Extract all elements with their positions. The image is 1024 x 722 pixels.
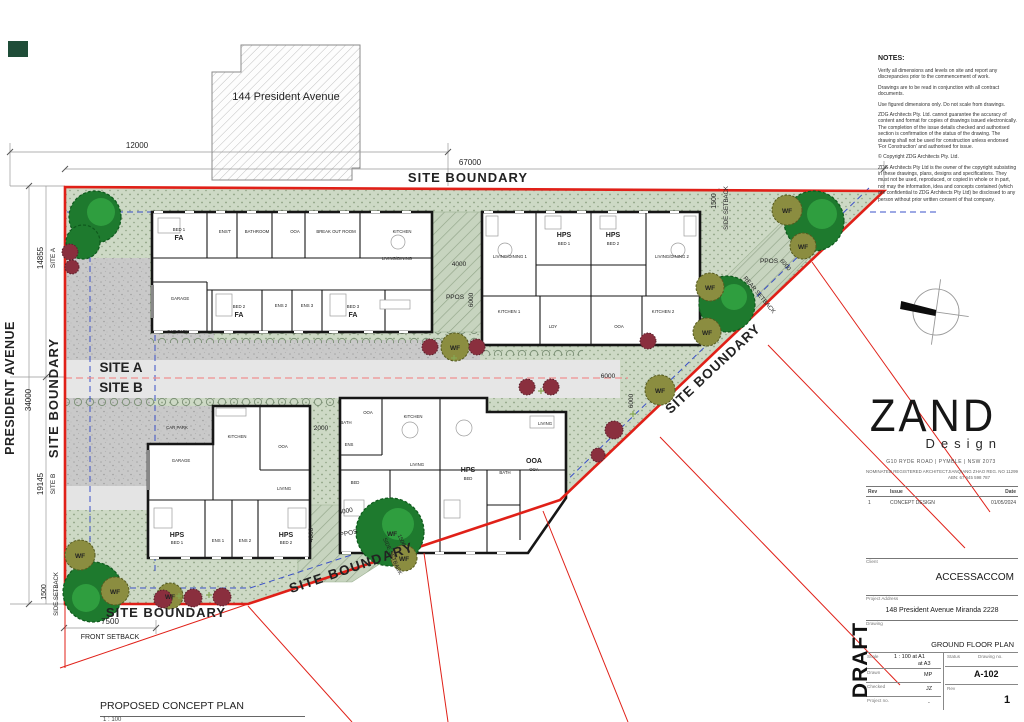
rev-value: 1 bbox=[866, 500, 890, 506]
room-label: LIVING/DINING 2 bbox=[655, 254, 690, 259]
unit-label-fa: FA bbox=[235, 312, 244, 319]
rev-label: Rev bbox=[947, 686, 955, 691]
site-boundary-left-label: SITE BOUNDARY bbox=[46, 338, 61, 458]
unit-label-hps: HPS bbox=[557, 232, 572, 239]
room-label: OOA bbox=[278, 444, 288, 449]
room-label: BED 2 bbox=[607, 241, 620, 246]
wf-label: WF bbox=[450, 345, 460, 352]
project-address-section: Project Address 148 President Avenue Mir… bbox=[866, 595, 1018, 614]
dim-14855: 14855 bbox=[36, 246, 45, 269]
wf-label: WF bbox=[387, 531, 397, 538]
room-label: GARAGE bbox=[172, 458, 191, 463]
client-section: Client ACCESSACCOM bbox=[866, 558, 1018, 583]
wf-label: WF bbox=[399, 556, 409, 563]
side-setback-left-label: SIDE SETBACK bbox=[54, 572, 60, 616]
site-a-label: SITE A bbox=[99, 360, 142, 375]
building-a2 bbox=[482, 212, 700, 345]
note-paragraph: Verify all dimensions and levels on site… bbox=[878, 68, 1018, 81]
note-paragraph: ZDG Architects Pty. Ltd. cannot guarante… bbox=[878, 112, 1018, 150]
site-b-label: SITE B bbox=[99, 380, 143, 395]
unit-label-hps: HPS bbox=[170, 532, 185, 539]
room-label: KITCHEN bbox=[404, 414, 423, 419]
ppos-mid-label: PPOS bbox=[446, 294, 465, 301]
dim-12000: 12000 bbox=[126, 141, 149, 150]
room-label: OOA bbox=[529, 467, 539, 472]
architect-row: NOMINATED REGISTERED ARCHITECT JIANQIANG… bbox=[866, 469, 1018, 481]
dim-6000-right-v: 6000 bbox=[628, 393, 635, 408]
room-label: BED 1 bbox=[171, 540, 184, 545]
drawing-title: GROUND FLOOR PLAN bbox=[866, 640, 1018, 649]
room-label: BED bbox=[351, 480, 360, 485]
room-label: LIVING bbox=[538, 421, 553, 426]
room-label: BED 3 bbox=[347, 304, 360, 309]
wf-label: WF bbox=[798, 244, 808, 251]
room-label: CAR PARK bbox=[167, 329, 189, 334]
room-label: ENS'T bbox=[219, 229, 232, 234]
rev-col-header: Rev bbox=[866, 489, 890, 495]
revision-table: Rev Issue Date 1 CONCEPT DESIGN 01/05/20… bbox=[866, 486, 1018, 509]
dim-6000-mid: 6000 bbox=[468, 292, 475, 307]
dim-1500-topright: 1500 bbox=[711, 193, 718, 209]
dim-1500-left: 1500 bbox=[41, 584, 48, 600]
title-block: NOTES: Verify all dimensions and levels … bbox=[858, 0, 1024, 722]
architect-label: NOMINATED REGISTERED ARCHITECT bbox=[866, 469, 948, 481]
room-label: OOA bbox=[290, 229, 300, 234]
issue-value: CONCEPT DESIGN bbox=[890, 500, 980, 506]
room-label: ENS bbox=[345, 442, 354, 447]
room-label: BATHROOM bbox=[245, 229, 270, 234]
rev-number: 1 bbox=[1004, 694, 1010, 706]
issue-col-header: Issue bbox=[890, 489, 980, 495]
room-label: LDY bbox=[549, 324, 557, 329]
room-label: ENS 2 bbox=[275, 303, 288, 308]
scale-value-a3: at A3 bbox=[918, 661, 931, 667]
room-label: LIVING bbox=[277, 486, 292, 491]
room-label: BED 2 bbox=[233, 304, 246, 309]
revision-row: 1 CONCEPT DESIGN 01/05/2024 bbox=[866, 497, 1018, 509]
wf-label: WF bbox=[782, 208, 792, 215]
room-label: GARAGE bbox=[171, 296, 190, 301]
room-label: BED bbox=[464, 476, 473, 481]
note-paragraph: ZDG Architects Pty Ltd is the owner of t… bbox=[878, 165, 1018, 203]
dim-34000: 34000 bbox=[24, 388, 33, 411]
room-label: LIVING/DINING bbox=[382, 256, 413, 261]
wf-label: WF bbox=[702, 330, 712, 337]
room-label: BREAK OUT ROOM bbox=[316, 229, 356, 234]
revision-table-header: Rev Issue Date bbox=[866, 486, 1018, 497]
wf-label: WF bbox=[110, 589, 120, 596]
drawing-label: Drawing bbox=[866, 621, 1018, 626]
neighbor-building bbox=[212, 45, 360, 180]
view-scale: 1 : 100 bbox=[103, 717, 121, 722]
room-label: LIVING bbox=[410, 462, 425, 467]
project-address-label: Project Address bbox=[866, 596, 1018, 601]
room-label: BED 2 bbox=[280, 540, 293, 545]
unit-label-hps: HPS bbox=[606, 232, 621, 239]
drawn-value: MP bbox=[924, 672, 932, 678]
view-title-underline bbox=[100, 716, 305, 717]
view-title: PROPOSED CONCEPT PLAN bbox=[100, 700, 244, 712]
checked-value: JZ bbox=[926, 686, 932, 692]
wf-label: WF bbox=[75, 553, 85, 560]
date-value: 01/05/2024 bbox=[980, 500, 1018, 506]
site-b-dim-label: SITE B bbox=[50, 474, 57, 495]
wf-label: WF bbox=[165, 594, 175, 601]
notes-heading: NOTES: bbox=[878, 55, 904, 62]
street-name: PRESIDENT AVENUE bbox=[3, 321, 17, 455]
side-setback-topright-label: SIDE SETBACK bbox=[724, 186, 730, 230]
drawing-number: A-102 bbox=[974, 669, 999, 679]
note-paragraph: Drawings are to be read in conjunction w… bbox=[878, 85, 1018, 98]
titleblock-grid: Scale 1 : 100 at A1 at A3 Drawn MP Check… bbox=[866, 652, 1018, 710]
unit-label-ooa: OOA bbox=[526, 458, 542, 465]
corner-mark bbox=[8, 41, 28, 57]
unit-label-hps: HPS bbox=[279, 532, 294, 539]
room-label: OOA bbox=[614, 324, 624, 329]
room-label: BATH bbox=[340, 420, 351, 425]
room-label: KITCHEN bbox=[228, 434, 247, 439]
architect-details: JIANQIANG ZHAO REG. NO 11299 ABN: 67 645… bbox=[948, 469, 1018, 481]
room-label: BATH bbox=[499, 470, 510, 475]
room-label: ENS 1 bbox=[212, 538, 225, 543]
dim-7500: 7500 bbox=[101, 617, 119, 626]
drawing-sheet: 144 President Avenue 12000 67000 SITE BO… bbox=[0, 0, 1024, 722]
zand-logo-design: Design bbox=[916, 436, 1002, 451]
unit-label-fa: FA bbox=[349, 312, 358, 319]
drawing-no-label: Drawing no. bbox=[978, 654, 1003, 659]
unit-label-hps: HPS bbox=[461, 467, 476, 474]
unit-label-fa: FA bbox=[175, 235, 184, 242]
architect-reg: JIANQIANG ZHAO REG. NO 11299 bbox=[948, 469, 1018, 474]
dim-6000-right: 6000 bbox=[601, 373, 616, 380]
room-label: OOA bbox=[363, 410, 373, 415]
project-address-value: 148 President Avenue Miranda 2228 bbox=[866, 607, 1018, 614]
client-label: Client bbox=[866, 559, 1018, 564]
room-label: ENS 3 bbox=[301, 303, 314, 308]
room-label: ENS 2 bbox=[239, 538, 252, 543]
note-paragraph: Use figured dimensions only. Do not scal… bbox=[878, 102, 1018, 108]
dim-4000-mid: 4000 bbox=[452, 261, 467, 268]
drawing-section: Drawing GROUND FLOOR PLAN bbox=[866, 620, 1018, 649]
draft-watermark: DRAFT bbox=[849, 605, 873, 715]
dim-67000: 67000 bbox=[459, 158, 482, 167]
scale-value: 1 : 100 at A1 bbox=[894, 654, 925, 660]
dim-4000-bottom: 4000 bbox=[308, 527, 315, 542]
site-boundary-bottom-label: SITE BOUNDARY bbox=[106, 605, 226, 620]
project-no-value: - bbox=[928, 700, 930, 706]
site-a-dim-label: SITE A bbox=[50, 247, 57, 268]
room-label: BED 1 bbox=[173, 227, 186, 232]
dim-2000: 2000 bbox=[314, 425, 329, 432]
wf-label: WF bbox=[705, 285, 715, 292]
neighbor-label: 144 President Avenue bbox=[232, 91, 339, 103]
room-label: KITCHEN 1 bbox=[498, 309, 521, 314]
room-label: LIVING/DINING 1 bbox=[493, 254, 528, 259]
zand-logo: ZAND bbox=[858, 390, 1008, 442]
notes-text: Verify all dimensions and levels on site… bbox=[878, 68, 1018, 207]
room-label: KITCHEN 2 bbox=[652, 309, 675, 314]
site-boundary-top-label: SITE BOUNDARY bbox=[408, 170, 528, 185]
client-name: ACCESSACCOM bbox=[866, 572, 1018, 583]
room-label: CAR PARK bbox=[166, 425, 188, 430]
ppos-rear-label: PPOS bbox=[760, 258, 779, 265]
dim-19145: 19145 bbox=[36, 472, 45, 495]
note-paragraph: © Copyright ZDG Architects Pty. Ltd. bbox=[878, 154, 1018, 160]
architect-abn: ABN: 67 645 598 787 bbox=[948, 475, 990, 480]
room-label: KITCHEN bbox=[393, 229, 412, 234]
front-setback-label: FRONT SETBACK bbox=[81, 634, 140, 641]
room-label: BED 1 bbox=[558, 241, 571, 246]
studio-address: G10 RYDE ROAD | PYMBLE | NSW 2073 bbox=[866, 459, 1016, 465]
wf-label: WF bbox=[655, 388, 665, 395]
status-label: Status bbox=[947, 654, 960, 659]
date-col-header: Date bbox=[980, 489, 1018, 495]
